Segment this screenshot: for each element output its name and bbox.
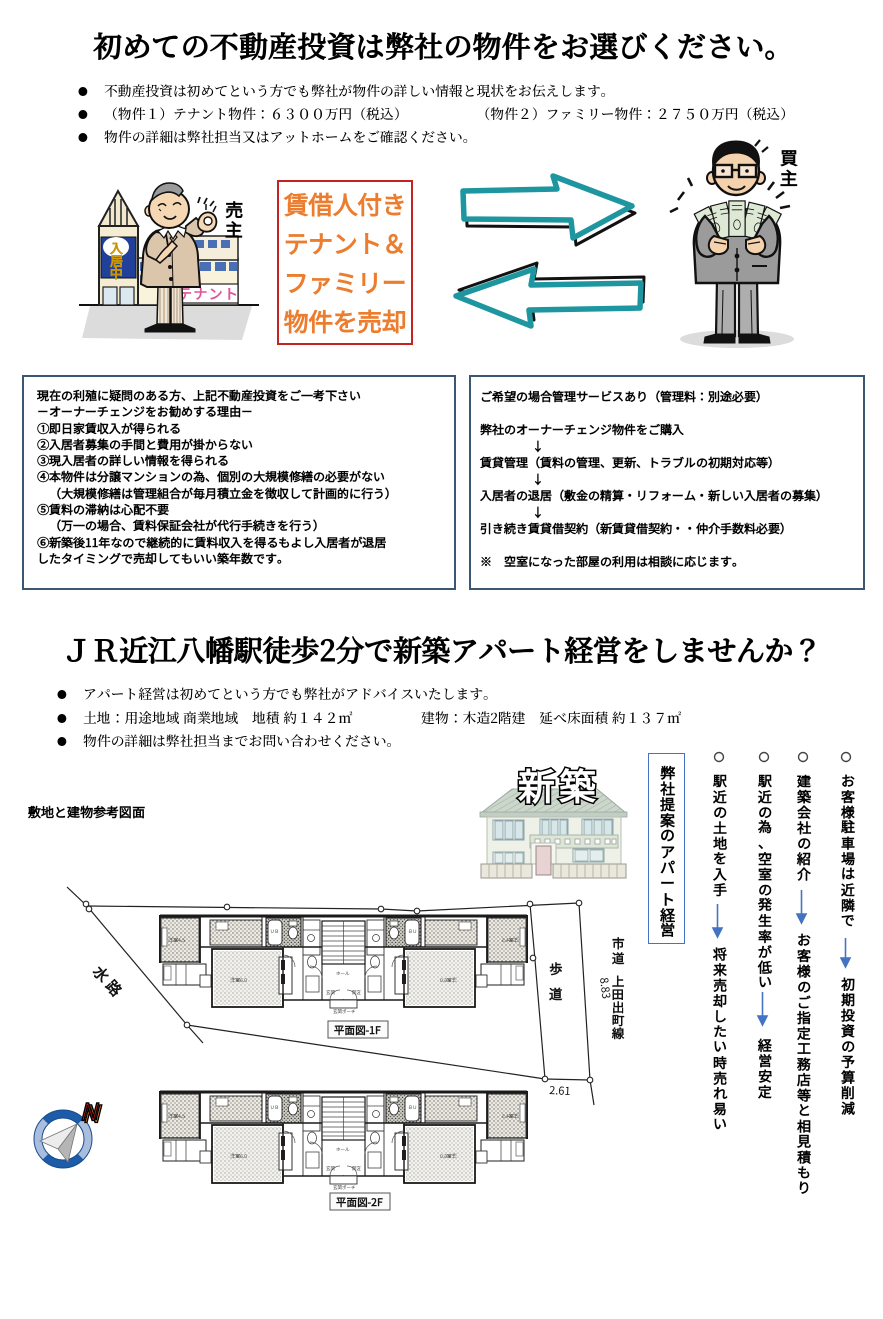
svg-text:2.61: 2.61: [549, 1082, 571, 1099]
svg-text:道: 道: [549, 983, 563, 1003]
svg-text:道: 道: [611, 948, 625, 967]
svg-text:平面図-1F: 平面図-1F: [334, 1023, 381, 1038]
svg-text:平面図-2F: 平面図-2F: [336, 1195, 383, 1210]
svg-text:水路: 水路: [88, 961, 130, 1004]
svg-text:歩: 歩: [549, 958, 563, 978]
svg-text:線: 線: [611, 1023, 625, 1042]
